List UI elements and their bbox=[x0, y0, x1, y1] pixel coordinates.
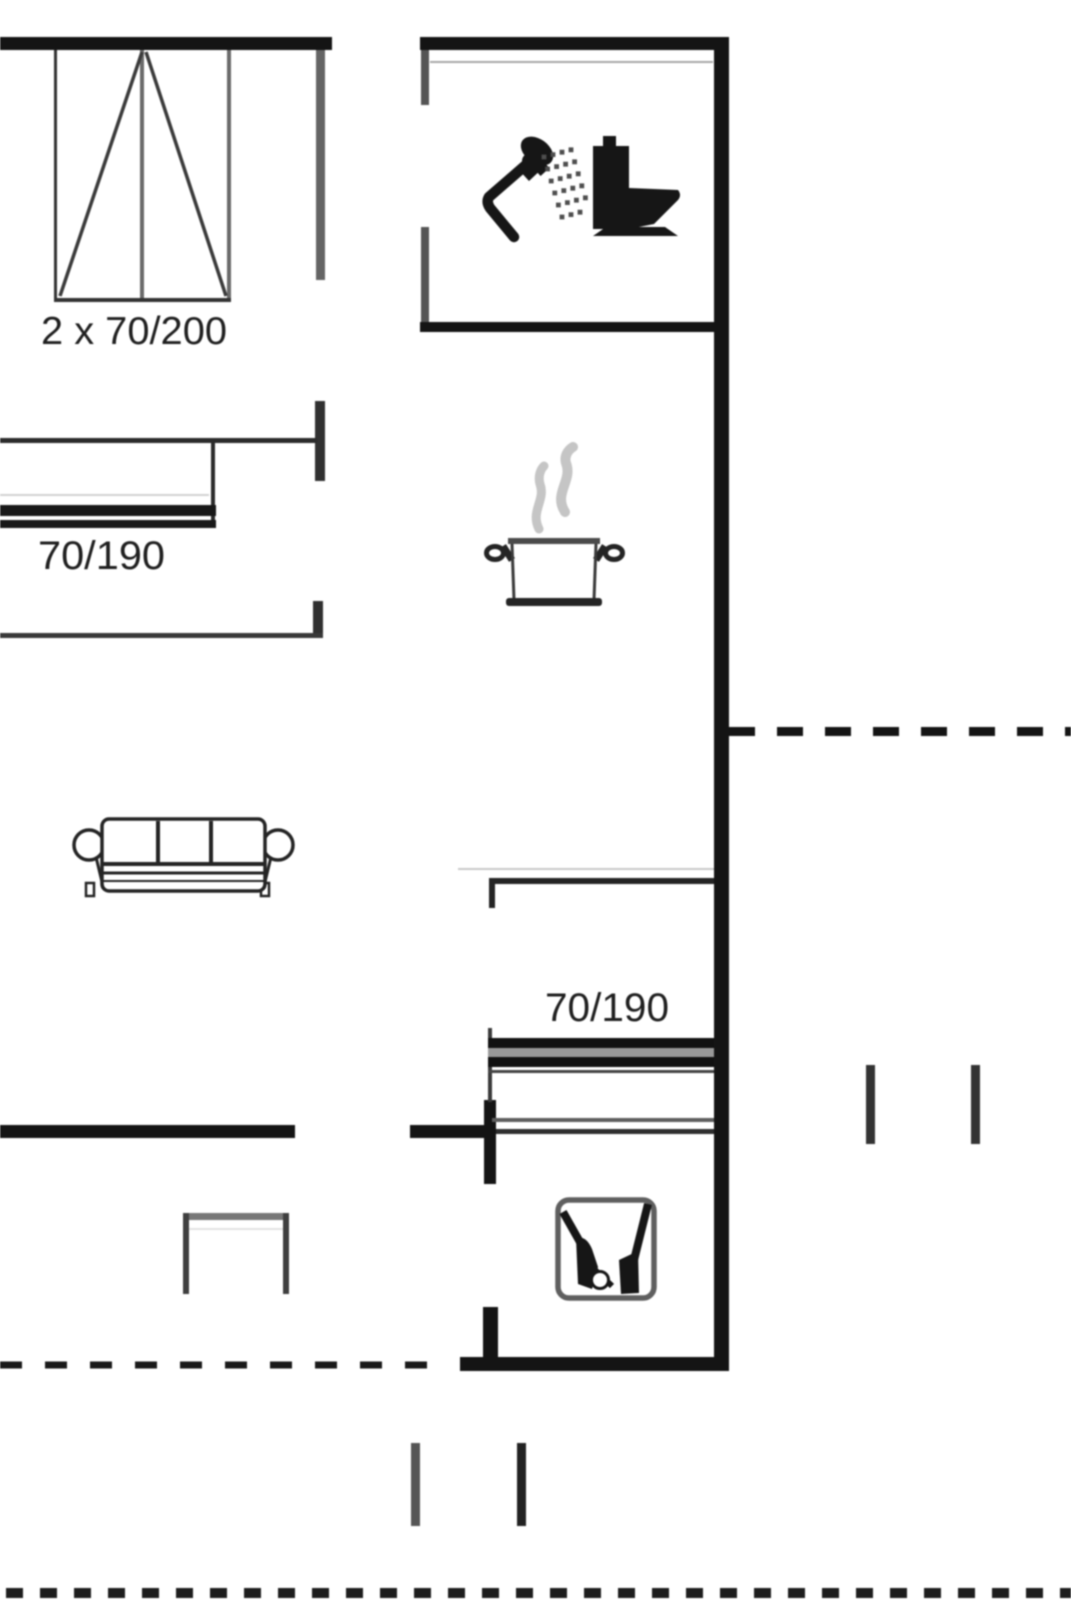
svg-text:70/190: 70/190 bbox=[38, 534, 165, 578]
svg-text:2 x 70/200: 2 x 70/200 bbox=[41, 310, 227, 353]
svg-text:70/190: 70/190 bbox=[545, 986, 669, 1030]
